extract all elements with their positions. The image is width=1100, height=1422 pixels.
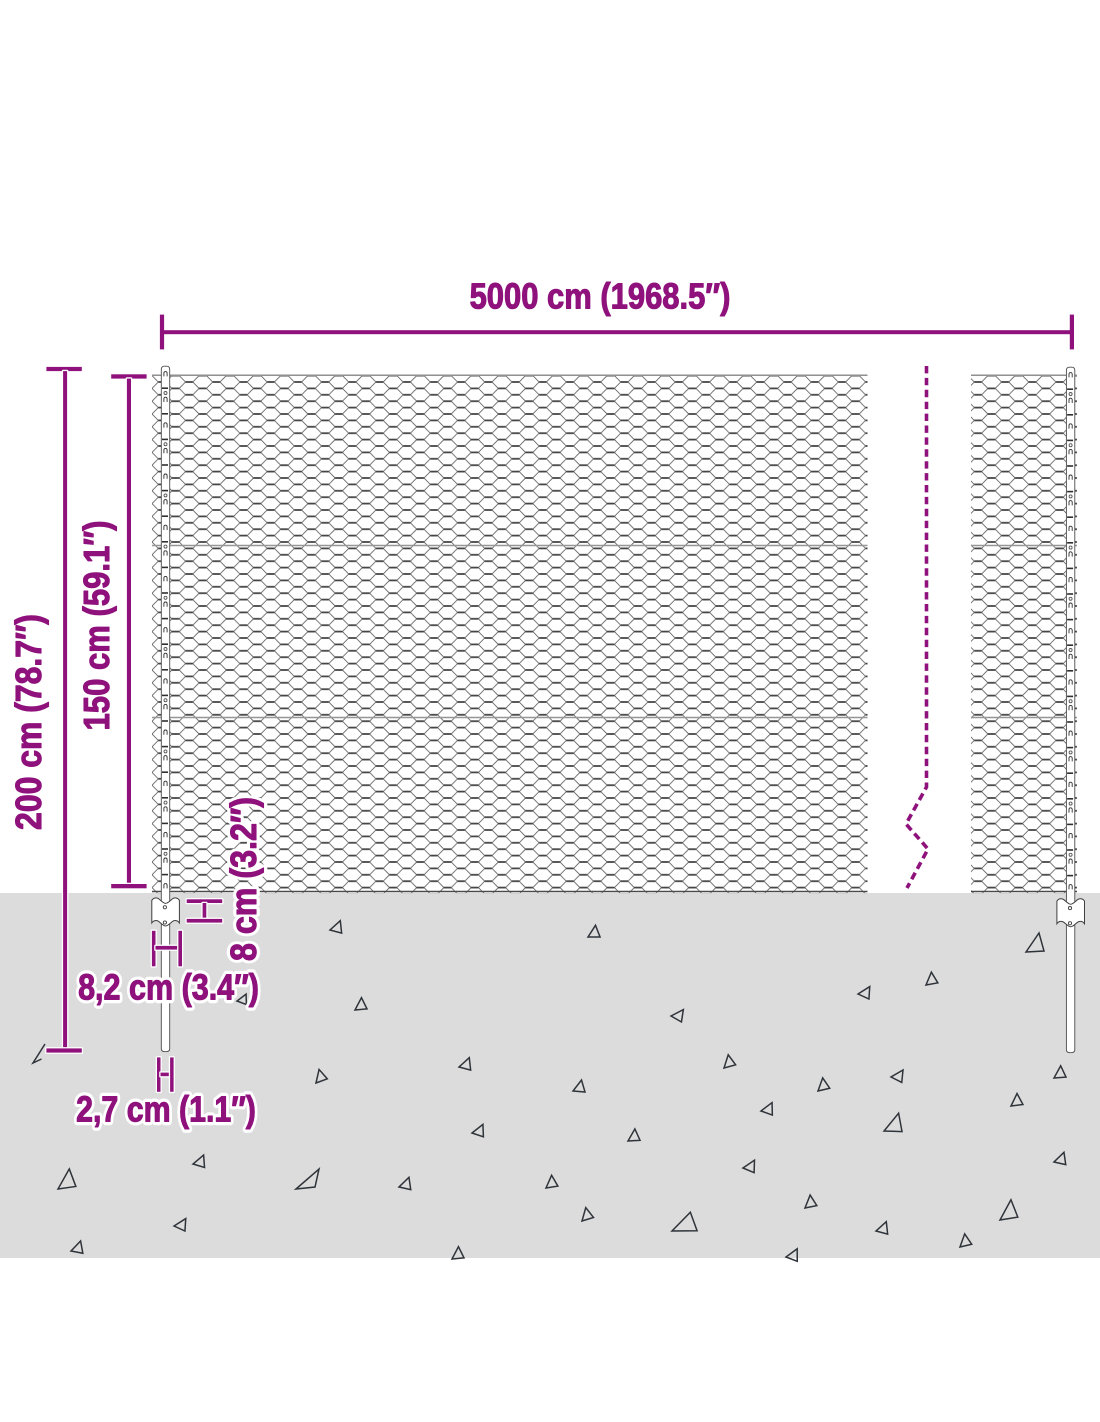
svg-text:5000 cm (1968.5″): 5000 cm (1968.5″) [470,277,731,317]
svg-text:200 cm (78.7″): 200 cm (78.7″) [9,614,49,830]
svg-text:150 cm (59.1″): 150 cm (59.1″) [78,521,118,731]
svg-text:2,7 cm (1.1″): 2,7 cm (1.1″) [76,1090,256,1130]
svg-text:8 cm (3.2″): 8 cm (3.2″) [224,797,264,961]
svg-text:8,2 cm (3.4″): 8,2 cm (3.4″) [78,968,259,1008]
